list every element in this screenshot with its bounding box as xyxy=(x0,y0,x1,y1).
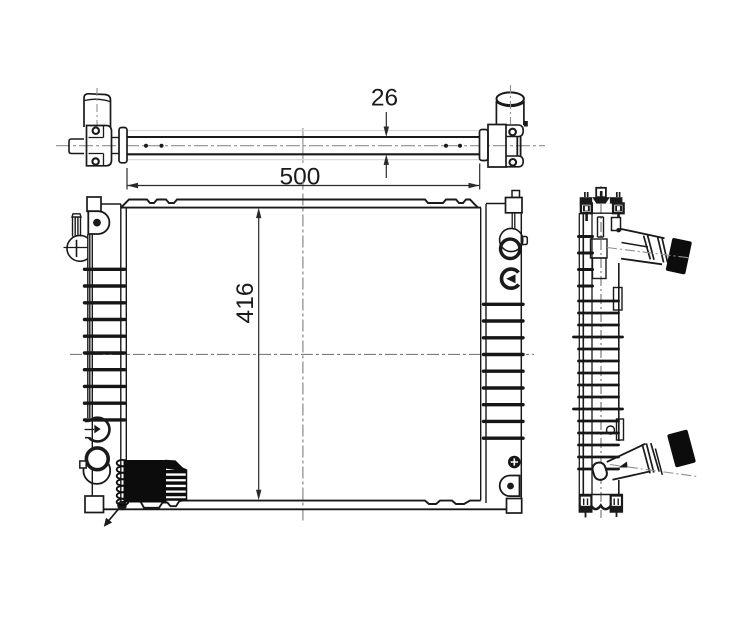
svg-text:500: 500 xyxy=(280,164,321,191)
svg-text:26: 26 xyxy=(371,85,398,112)
svg-text:416: 416 xyxy=(232,283,259,324)
